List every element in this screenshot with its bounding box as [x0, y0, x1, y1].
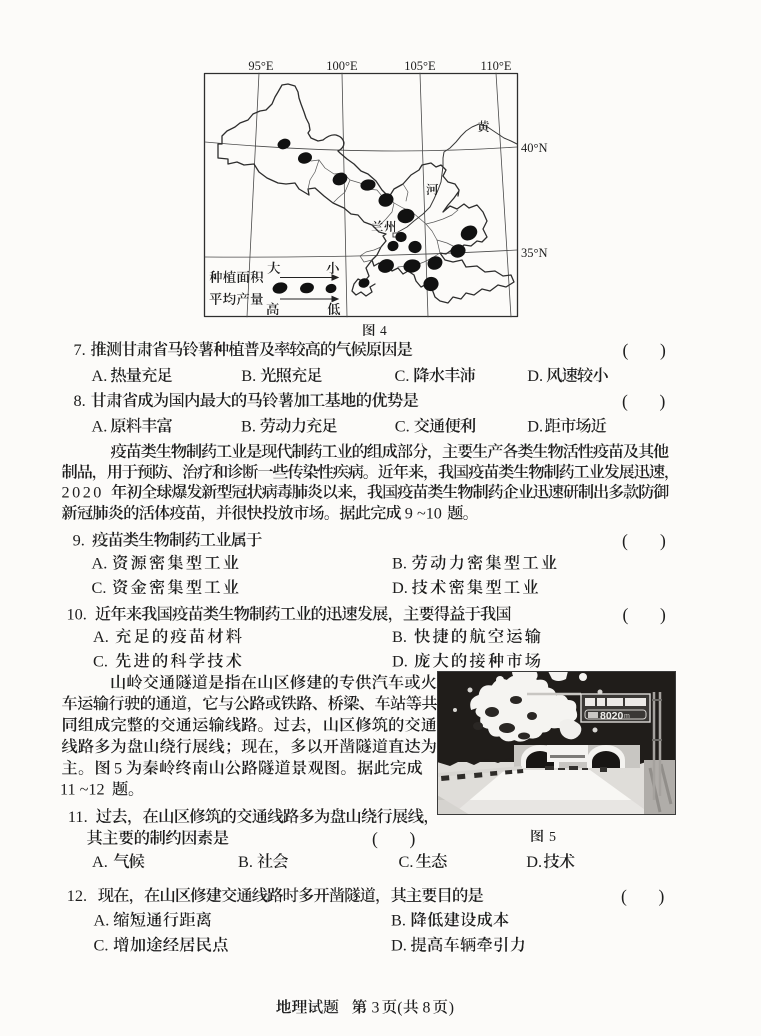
- svg-text:9 ~10: 9 ~10: [405, 505, 442, 523]
- svg-text:5: 5: [549, 830, 556, 845]
- svg-text:): ): [660, 391, 666, 411]
- svg-text:(: (: [397, 1000, 402, 1017]
- svg-text:D.: D.: [527, 366, 543, 385]
- svg-text:B.: B.: [392, 554, 407, 573]
- svg-text:A.: A.: [93, 627, 109, 646]
- svg-text:B.: B.: [391, 911, 406, 930]
- svg-text:(: (: [372, 829, 378, 849]
- svg-text:12.: 12.: [67, 886, 87, 905]
- svg-text:): ): [660, 531, 666, 551]
- svg-text:3: 3: [372, 1000, 380, 1017]
- svg-text:A.: A.: [92, 554, 108, 573]
- svg-text:A.: A.: [92, 366, 108, 385]
- svg-text:(: (: [622, 391, 628, 411]
- svg-text:5: 5: [114, 760, 122, 778]
- svg-text:D.: D.: [527, 417, 543, 436]
- svg-text:): ): [659, 886, 665, 906]
- svg-text:C.: C.: [395, 366, 410, 385]
- svg-text:95°E: 95°E: [248, 59, 273, 73]
- svg-text:): ): [449, 1000, 454, 1017]
- svg-text:4: 4: [380, 323, 387, 338]
- svg-text:105°E: 105°E: [404, 59, 436, 73]
- svg-text:35°N: 35°N: [521, 246, 548, 260]
- svg-text:11.: 11.: [68, 807, 88, 826]
- svg-text:11 ~12: 11 ~12: [60, 781, 105, 799]
- svg-text:110°E: 110°E: [481, 59, 512, 73]
- svg-text:A.: A.: [92, 417, 108, 436]
- svg-text:C.: C.: [94, 936, 109, 955]
- svg-text:D.: D.: [392, 652, 408, 671]
- svg-text:D.: D.: [392, 578, 408, 597]
- svg-text:B.: B.: [392, 627, 407, 646]
- svg-text:B.: B.: [241, 366, 256, 385]
- svg-text:C.: C.: [92, 578, 107, 597]
- svg-text:8.: 8.: [74, 391, 86, 410]
- svg-text:): ): [410, 829, 416, 849]
- svg-text:): ): [660, 340, 666, 360]
- svg-text:A.: A.: [92, 852, 108, 871]
- svg-text:A.: A.: [94, 911, 110, 930]
- svg-text:10.: 10.: [67, 605, 87, 624]
- svg-text:D.: D.: [391, 936, 407, 955]
- svg-text:7.: 7.: [74, 340, 86, 359]
- svg-text:(: (: [623, 605, 629, 625]
- svg-text:8: 8: [423, 1000, 431, 1017]
- svg-text:C.: C.: [399, 852, 414, 871]
- svg-text:100°E: 100°E: [326, 59, 358, 73]
- svg-text:m: m: [624, 713, 630, 720]
- svg-text:B.: B.: [238, 852, 253, 871]
- svg-text:2020: 2020: [62, 484, 104, 502]
- svg-text:): ): [660, 605, 666, 625]
- svg-text:9.: 9.: [73, 531, 85, 550]
- svg-text:(: (: [622, 531, 628, 551]
- svg-text:40°N: 40°N: [521, 141, 548, 155]
- svg-text:C.: C.: [93, 652, 108, 671]
- svg-text:B.: B.: [241, 417, 256, 436]
- svg-text:C.: C.: [395, 417, 410, 436]
- svg-text:D.: D.: [526, 852, 542, 871]
- svg-text:8020: 8020: [600, 710, 624, 722]
- svg-text:(: (: [621, 886, 627, 906]
- svg-text:(: (: [623, 340, 629, 360]
